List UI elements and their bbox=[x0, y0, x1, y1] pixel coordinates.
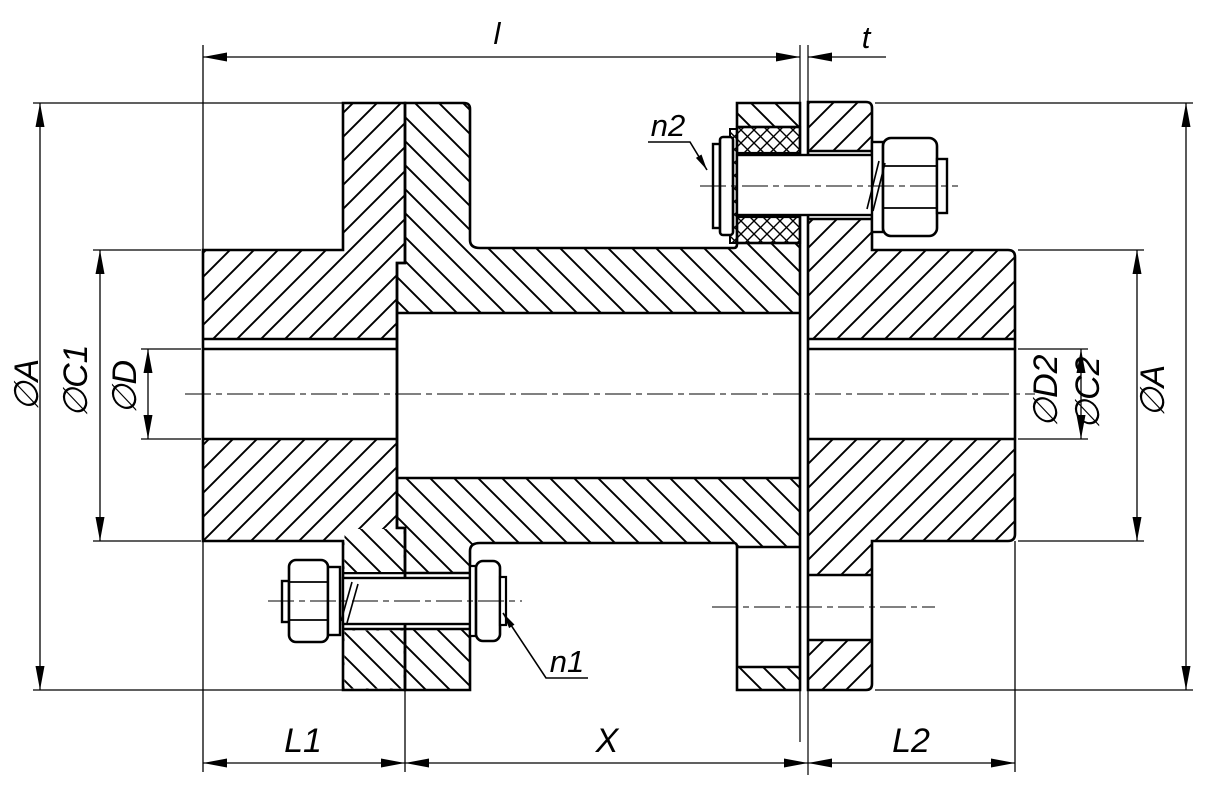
label-n1: n1 bbox=[550, 644, 584, 679]
label-t: t bbox=[862, 20, 872, 55]
label-dia-D2: ∅D2 bbox=[1027, 354, 1065, 427]
label-L2: L2 bbox=[892, 722, 930, 760]
label-L1: L1 bbox=[284, 722, 322, 760]
label-l: l bbox=[494, 16, 502, 51]
label-dia-C2: ∅C2 bbox=[1069, 356, 1107, 429]
dimension-lines bbox=[33, 45, 1193, 772]
leader-lines bbox=[503, 142, 707, 678]
label-X: X bbox=[595, 722, 620, 760]
label-dia-C1: ∅C1 bbox=[57, 344, 95, 417]
label-dia-A-right: ∅A bbox=[1134, 365, 1172, 417]
drawing-canvas: l t n2 n1 L1 X L2 ∅A ∅C1 ∅D ∅D2 ∅C2 ∅A bbox=[0, 0, 1207, 789]
dimension-arrows bbox=[36, 53, 1191, 768]
label-dia-D: ∅D bbox=[106, 360, 144, 414]
label-n2: n2 bbox=[651, 108, 685, 143]
label-dia-A-left: ∅A bbox=[8, 359, 46, 411]
dimension-labels: l t n2 n1 L1 X L2 ∅A ∅C1 ∅D ∅D2 ∅C2 ∅A bbox=[8, 16, 1172, 760]
technical-drawing: l t n2 n1 L1 X L2 ∅A ∅C1 ∅D ∅D2 ∅C2 ∅A bbox=[0, 0, 1207, 789]
